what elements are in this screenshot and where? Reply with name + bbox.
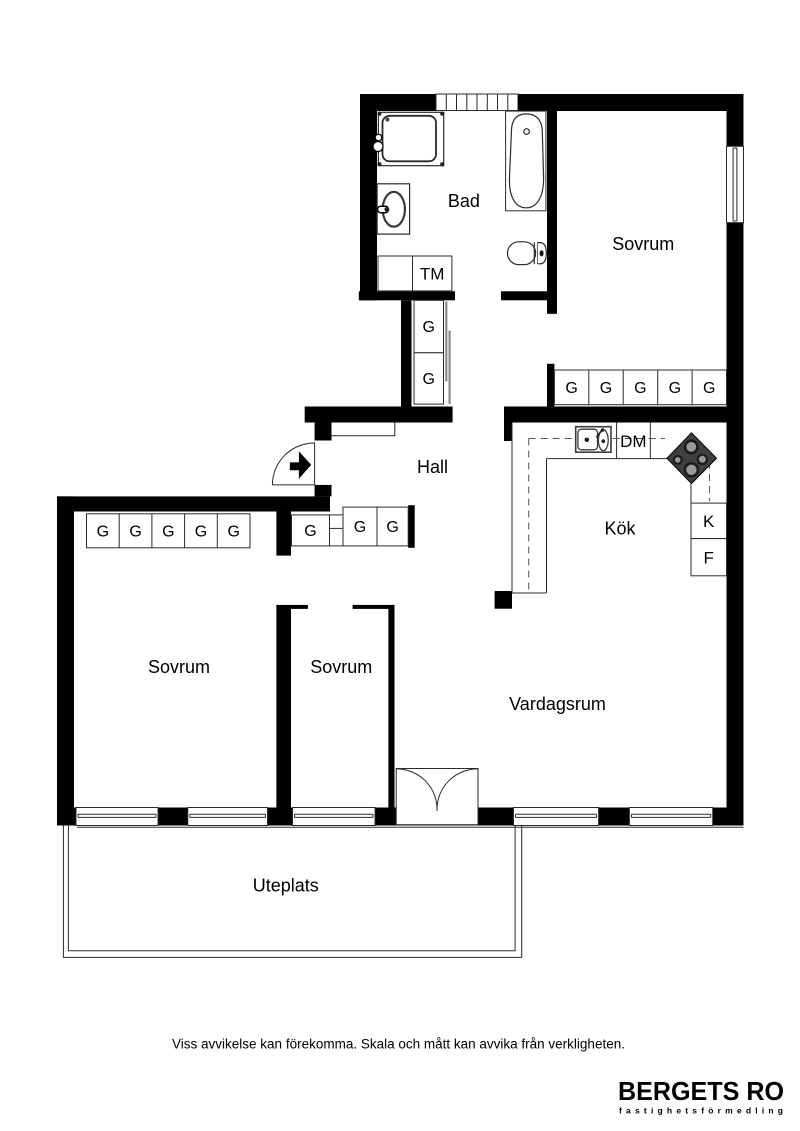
svg-text:G: G xyxy=(600,380,612,397)
svg-text:G: G xyxy=(565,380,577,397)
svg-text:DM: DM xyxy=(620,432,646,451)
svg-text:G: G xyxy=(227,524,239,541)
svg-text:BERGETS RO: BERGETS RO xyxy=(618,1076,784,1106)
svg-text:G: G xyxy=(97,524,109,541)
svg-text:G: G xyxy=(422,319,434,336)
svg-text:K: K xyxy=(703,512,715,531)
svg-text:G: G xyxy=(195,524,207,541)
svg-text:G: G xyxy=(422,371,434,388)
svg-text:Uteplats: Uteplats xyxy=(253,876,319,896)
svg-text:G: G xyxy=(354,519,366,536)
svg-text:Sovrum: Sovrum xyxy=(612,234,674,254)
svg-text:G: G xyxy=(669,380,681,397)
svg-text:Kök: Kök xyxy=(604,518,636,538)
svg-text:G: G xyxy=(634,380,646,397)
svg-text:Bad: Bad xyxy=(448,191,480,211)
svg-text:Sovrum: Sovrum xyxy=(310,657,372,677)
svg-text:G: G xyxy=(304,523,316,540)
svg-text:Viss avvikelse kan förekomma.: Viss avvikelse kan förekomma. Skala och … xyxy=(172,1037,625,1052)
svg-text:G: G xyxy=(386,519,398,536)
svg-text:G: G xyxy=(162,524,174,541)
svg-text:Vardagsrum: Vardagsrum xyxy=(509,694,606,714)
svg-text:F: F xyxy=(704,549,714,568)
svg-text:TM: TM xyxy=(420,265,445,284)
svg-text:G: G xyxy=(703,380,715,397)
svg-text:Sovrum: Sovrum xyxy=(148,657,210,677)
svg-text:Hall: Hall xyxy=(417,457,448,477)
svg-text:G: G xyxy=(129,524,141,541)
